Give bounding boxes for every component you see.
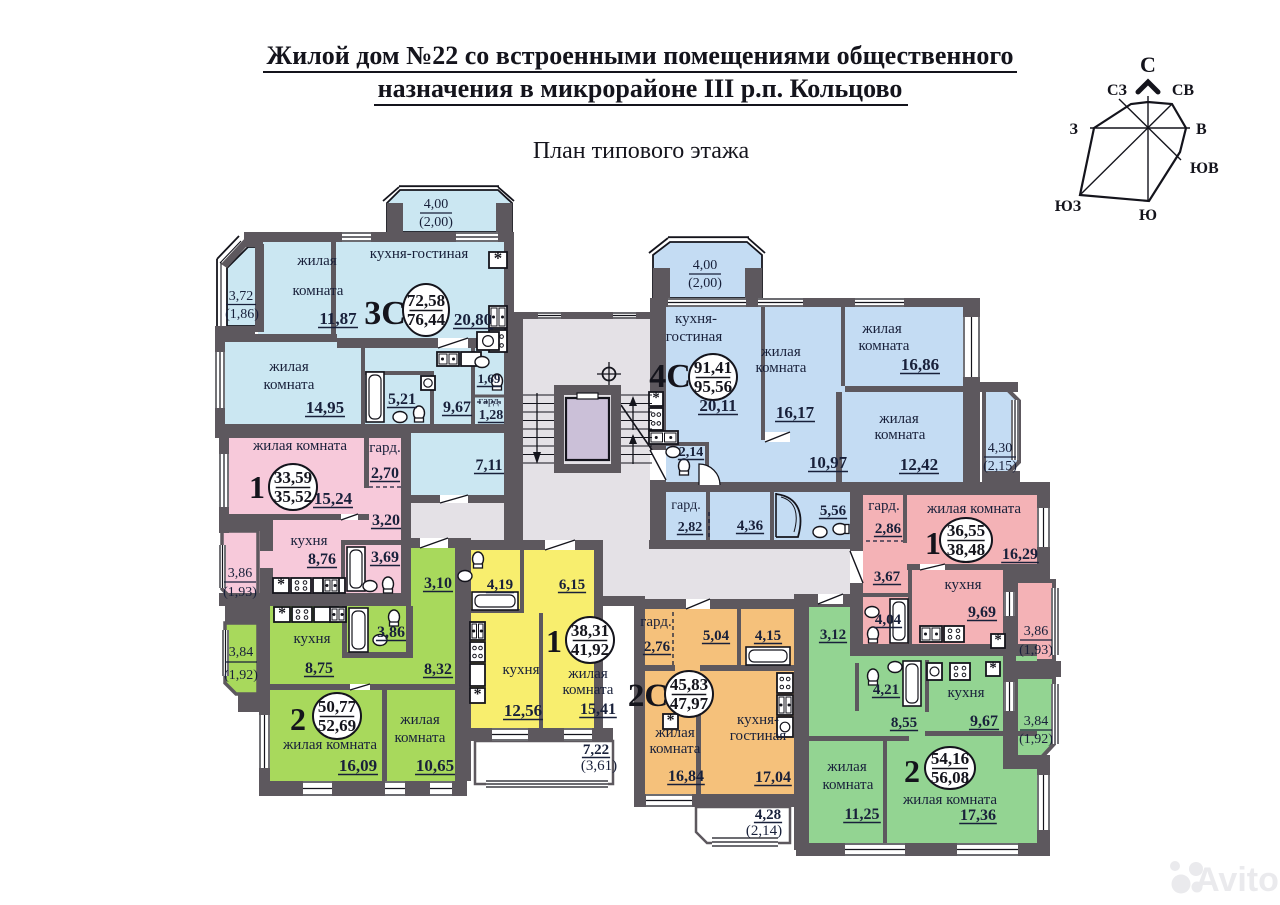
svg-text:кухня: кухня [944, 577, 981, 593]
svg-text:1: 1 [925, 525, 941, 561]
svg-text:комната: комната [875, 427, 926, 443]
svg-text:ЮВ: ЮВ [1190, 160, 1219, 177]
svg-text:*: * [278, 605, 286, 622]
svg-text:(2,14): (2,14) [746, 823, 782, 839]
svg-text:гостиная: гостиная [666, 329, 723, 345]
svg-text:95,56: 95,56 [694, 377, 732, 396]
svg-text:З: З [1070, 121, 1079, 138]
svg-text:*: * [989, 660, 996, 676]
svg-text:20,80: 20,80 [454, 310, 492, 329]
svg-text:Жилой дом №22 со встроенными п: Жилой дом №22 со встроенными помещениями… [267, 41, 1014, 70]
svg-text:гард.: гард. [671, 498, 700, 513]
svg-text:8,55: 8,55 [891, 715, 917, 731]
svg-text:56,08: 56,08 [931, 768, 969, 787]
svg-text:(1,93): (1,93) [223, 585, 257, 600]
svg-text:гард.: гард. [369, 440, 401, 456]
svg-text:4,19: 4,19 [487, 577, 513, 593]
svg-text:СВ: СВ [1172, 82, 1195, 99]
svg-text:16,17: 16,17 [776, 403, 815, 422]
svg-text:жилая: жилая [296, 253, 337, 269]
svg-text:4,15: 4,15 [755, 628, 781, 644]
svg-text:С: С [1140, 52, 1156, 77]
svg-text:5,56: 5,56 [820, 503, 847, 519]
svg-text:7,11: 7,11 [475, 457, 502, 474]
svg-text:16,29: 16,29 [1002, 546, 1038, 563]
svg-text:1: 1 [249, 469, 265, 505]
svg-text:3,84: 3,84 [1024, 714, 1049, 729]
svg-text:76,44: 76,44 [407, 310, 446, 329]
svg-text:2С: 2С [628, 678, 668, 714]
svg-text:(2,00): (2,00) [419, 215, 453, 230]
svg-text:50,77: 50,77 [318, 697, 357, 716]
svg-text:91,41: 91,41 [694, 358, 732, 377]
svg-text:3,67: 3,67 [874, 569, 901, 585]
svg-text:В: В [1196, 121, 1207, 138]
svg-text:3,86: 3,86 [377, 624, 405, 641]
svg-text:(3,61): (3,61) [581, 758, 617, 774]
svg-text:3,86: 3,86 [1024, 624, 1049, 639]
svg-text:9,69: 9,69 [968, 604, 996, 621]
svg-text:54,16: 54,16 [931, 749, 969, 768]
svg-text:3,84: 3,84 [229, 645, 254, 660]
svg-text:*: * [474, 686, 482, 703]
svg-text:гард.: гард. [478, 395, 501, 407]
svg-text:(2,00): (2,00) [688, 276, 722, 291]
svg-text:11,87: 11,87 [319, 309, 357, 328]
svg-text:жилая комната: жилая комната [902, 792, 997, 808]
svg-text:38,31: 38,31 [571, 621, 609, 640]
svg-text:15,41: 15,41 [580, 701, 616, 718]
svg-text:(1,93): (1,93) [1019, 643, 1053, 658]
svg-text:16,84: 16,84 [668, 768, 704, 785]
svg-text:комната: комната [756, 360, 807, 376]
svg-text:жилая: жилая [567, 666, 608, 682]
svg-text:8,76: 8,76 [308, 551, 336, 568]
svg-text:8,32: 8,32 [424, 661, 452, 678]
svg-text:*: * [494, 249, 502, 268]
svg-text:Avito: Avito [1195, 861, 1279, 899]
svg-text:20,11: 20,11 [699, 396, 736, 415]
svg-text:2: 2 [290, 701, 306, 737]
svg-text:жилая: жилая [654, 725, 695, 741]
svg-text:кухня: кухня [290, 533, 327, 549]
svg-text:комната: комната [859, 338, 910, 354]
svg-text:2,86: 2,86 [875, 521, 902, 537]
svg-text:4,21: 4,21 [873, 682, 899, 698]
svg-text:4,00: 4,00 [693, 258, 718, 273]
svg-text:9,67: 9,67 [970, 713, 998, 730]
svg-text:15,24: 15,24 [314, 489, 353, 508]
svg-text:кухня: кухня [293, 631, 330, 647]
svg-text:жилая: жилая [760, 344, 801, 360]
svg-text:2,70: 2,70 [371, 465, 399, 482]
svg-text:кухня-гостиная: кухня-гостиная [370, 246, 469, 262]
svg-text:4С: 4С [649, 358, 691, 395]
svg-text:(1,92): (1,92) [224, 668, 258, 683]
svg-text:38,48: 38,48 [947, 540, 985, 559]
svg-text:комната: комната [563, 682, 614, 698]
svg-text:52,69: 52,69 [318, 716, 356, 735]
svg-text:33,59: 33,59 [274, 468, 312, 487]
svg-text:72,58: 72,58 [407, 291, 445, 310]
svg-text:3,10: 3,10 [424, 575, 452, 592]
svg-text:7,22: 7,22 [583, 742, 609, 758]
svg-text:3,20: 3,20 [372, 512, 400, 529]
svg-text:4,28: 4,28 [755, 807, 781, 823]
svg-text:кухня-: кухня- [675, 311, 717, 327]
svg-text:12,56: 12,56 [504, 701, 542, 720]
svg-text:назначения в микрорайоне III р: назначения в микрорайоне III р.п. Кольцо… [378, 74, 903, 103]
svg-text:3,72: 3,72 [229, 289, 254, 304]
svg-text:жилая: жилая [878, 411, 919, 427]
svg-text:47,97: 47,97 [670, 694, 709, 713]
svg-text:35,52: 35,52 [274, 487, 312, 506]
svg-text:4,00: 4,00 [424, 197, 449, 212]
svg-text:комната: комната [293, 283, 344, 299]
svg-text:комната: комната [395, 730, 446, 746]
svg-text:СЗ: СЗ [1107, 82, 1128, 99]
svg-text:36,55: 36,55 [947, 521, 985, 540]
svg-text:кухня: кухня [947, 685, 984, 701]
svg-text:*: * [994, 632, 1001, 648]
svg-text:гард.: гард. [868, 498, 900, 514]
svg-text:10,65: 10,65 [416, 756, 454, 775]
svg-text:4,04: 4,04 [875, 612, 902, 628]
svg-text:45,83: 45,83 [670, 675, 708, 694]
svg-text:жилая: жилая [826, 759, 867, 775]
svg-text:жилая комната: жилая комната [252, 438, 347, 454]
svg-text:3,69: 3,69 [371, 549, 399, 566]
svg-text:комната: комната [264, 377, 315, 393]
svg-text:3С: 3С [364, 295, 406, 332]
svg-text:9,67: 9,67 [443, 399, 471, 416]
svg-text:жилая: жилая [399, 712, 440, 728]
svg-text:*: * [277, 576, 285, 593]
svg-text:(1,86): (1,86) [225, 307, 259, 322]
svg-text:комната: комната [650, 741, 701, 757]
svg-text:(2,15): (2,15) [983, 459, 1017, 474]
svg-text:41,92: 41,92 [571, 640, 609, 659]
svg-text:(1,92): (1,92) [1019, 732, 1053, 747]
svg-text:1: 1 [546, 623, 562, 659]
svg-text:ЮЗ: ЮЗ [1055, 198, 1082, 215]
svg-text:4,30: 4,30 [988, 441, 1013, 456]
svg-text:11,25: 11,25 [844, 806, 879, 823]
svg-text:жилая: жилая [861, 321, 902, 337]
svg-text:4,36: 4,36 [737, 518, 764, 534]
svg-text:кухня-: кухня- [737, 712, 779, 728]
svg-text:жилая: жилая [268, 359, 309, 375]
svg-text:1,28: 1,28 [479, 408, 504, 423]
svg-text:2: 2 [904, 753, 920, 789]
svg-text:План типового этажа: План типового этажа [533, 138, 750, 164]
svg-text:5,21: 5,21 [388, 391, 416, 408]
svg-text:2,82: 2,82 [678, 520, 703, 535]
svg-text:комната: комната [823, 777, 874, 793]
svg-text:кухня: кухня [502, 662, 539, 678]
svg-text:8,75: 8,75 [305, 660, 333, 677]
svg-text:17,04: 17,04 [755, 769, 791, 786]
svg-text:16,09: 16,09 [339, 756, 377, 775]
svg-text:гостиная: гостиная [730, 728, 787, 744]
svg-text:16,86: 16,86 [901, 355, 939, 374]
svg-text:10,97: 10,97 [809, 453, 848, 472]
svg-text:жилая комната: жилая комната [282, 737, 377, 753]
svg-text:3,12: 3,12 [820, 627, 846, 643]
svg-text:2,14: 2,14 [679, 445, 704, 460]
svg-text:6,15: 6,15 [559, 577, 585, 593]
svg-text:жилая комната: жилая комната [926, 501, 1021, 517]
svg-text:2,76: 2,76 [644, 639, 671, 655]
svg-text:17,36: 17,36 [960, 807, 996, 824]
svg-text:гард.: гард. [640, 614, 672, 630]
svg-text:12,42: 12,42 [900, 455, 938, 474]
svg-text:1,69: 1,69 [478, 371, 501, 386]
svg-text:14,95: 14,95 [306, 398, 344, 417]
svg-text:5,04: 5,04 [703, 628, 730, 644]
svg-text:3,86: 3,86 [228, 566, 253, 581]
svg-text:Ю: Ю [1139, 207, 1157, 224]
